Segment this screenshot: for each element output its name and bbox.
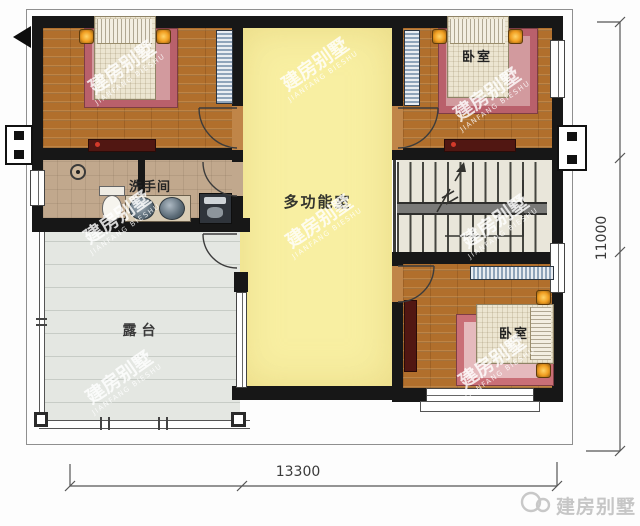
nightstand-lamp (508, 29, 523, 44)
railing-tick (158, 417, 160, 430)
dimension-tick (65, 481, 75, 491)
stair-treads-lower (397, 211, 547, 252)
dimension-tick (552, 481, 562, 491)
door-opening (232, 162, 243, 196)
railing-tick (36, 318, 47, 320)
washing-unit-top (204, 197, 226, 204)
room-label-bedroom-top-right: 卧室 (447, 47, 507, 63)
bed-top-left (94, 16, 156, 100)
door-opening (392, 266, 403, 302)
stair-landing-rail (397, 202, 547, 215)
room-label-terrace: 露台 (43, 322, 240, 338)
sink-basin (159, 197, 185, 220)
flue-square (567, 155, 577, 164)
window-bedroomBR-bottom (426, 388, 534, 402)
flue-vent-left (5, 125, 33, 165)
flue-square (567, 132, 577, 141)
closet-top-right-bedroom (404, 30, 420, 106)
dimension-tick (615, 17, 625, 27)
railing-tick (100, 417, 102, 430)
sink-basin (129, 197, 155, 220)
tv-cabinet (88, 139, 156, 152)
room-label-bathroom: 洗手间 (113, 177, 187, 193)
dimension-tick (615, 446, 625, 456)
terrace-corner-post (231, 412, 246, 427)
tv-cabinet (444, 139, 516, 152)
tv-cabinet-vertical (404, 300, 417, 372)
logo-text: 建房别墅 (556, 492, 636, 519)
floor-plan-canvas: 多功能室 洗手间 露台 卧室 卧室 13300 11000 建房别墅 JIANF… (0, 0, 640, 526)
stair-treads-upper (397, 162, 547, 202)
wall-terrace-stub (234, 272, 248, 292)
window-bedroomTR-right (550, 40, 565, 98)
flue-square (14, 131, 24, 140)
room-label-bedroom-bottom-right: 卧室 (476, 324, 552, 340)
tv-dot (451, 142, 456, 147)
room-label-multi-function: 多功能室 (243, 192, 392, 210)
toilet-bowl (102, 195, 122, 221)
flue-square (14, 150, 24, 159)
window-terrace-right (236, 292, 247, 388)
stairs-edge-line (393, 160, 396, 252)
drain-dot (76, 170, 80, 174)
door-opening (232, 106, 243, 150)
dimension-tick (615, 247, 625, 257)
terrace-railing-bottom (39, 420, 250, 429)
flue-vent-right (557, 125, 587, 171)
dimension-tick (237, 481, 247, 491)
wall-stairs-bedroomBR (392, 252, 563, 264)
dimension-tick (615, 153, 625, 163)
closet-top-left-bedroom (216, 30, 233, 104)
dimension-label-height: 11000 (594, 193, 610, 283)
railing-tick (166, 417, 168, 430)
nightstand-lamp (432, 29, 447, 44)
bed-pillow (97, 19, 152, 44)
logo-circle-small (537, 499, 549, 511)
logo-circle-large (522, 493, 540, 511)
nightstand-lamp (536, 290, 551, 305)
bay-window-outline (420, 401, 540, 412)
washing-unit (199, 193, 232, 224)
tv-dot (95, 142, 100, 147)
dimension-label-width: 13300 (253, 464, 343, 480)
bed-pillow (450, 19, 505, 44)
floor-drain-icon (70, 164, 86, 180)
washing-unit-drum (207, 207, 223, 218)
nightstand-lamp (536, 363, 551, 378)
railing-tick (108, 417, 110, 430)
window-bathroom-left (30, 170, 45, 206)
nightstand-lamp (156, 29, 171, 44)
terrace-corner-post (34, 412, 48, 427)
nightstand-lamp (79, 29, 94, 44)
wall-bottom-multifunction (232, 386, 403, 400)
closet-bottom-right-bedroom (470, 266, 554, 280)
logo-icon (522, 493, 549, 511)
door-opening (392, 106, 403, 150)
